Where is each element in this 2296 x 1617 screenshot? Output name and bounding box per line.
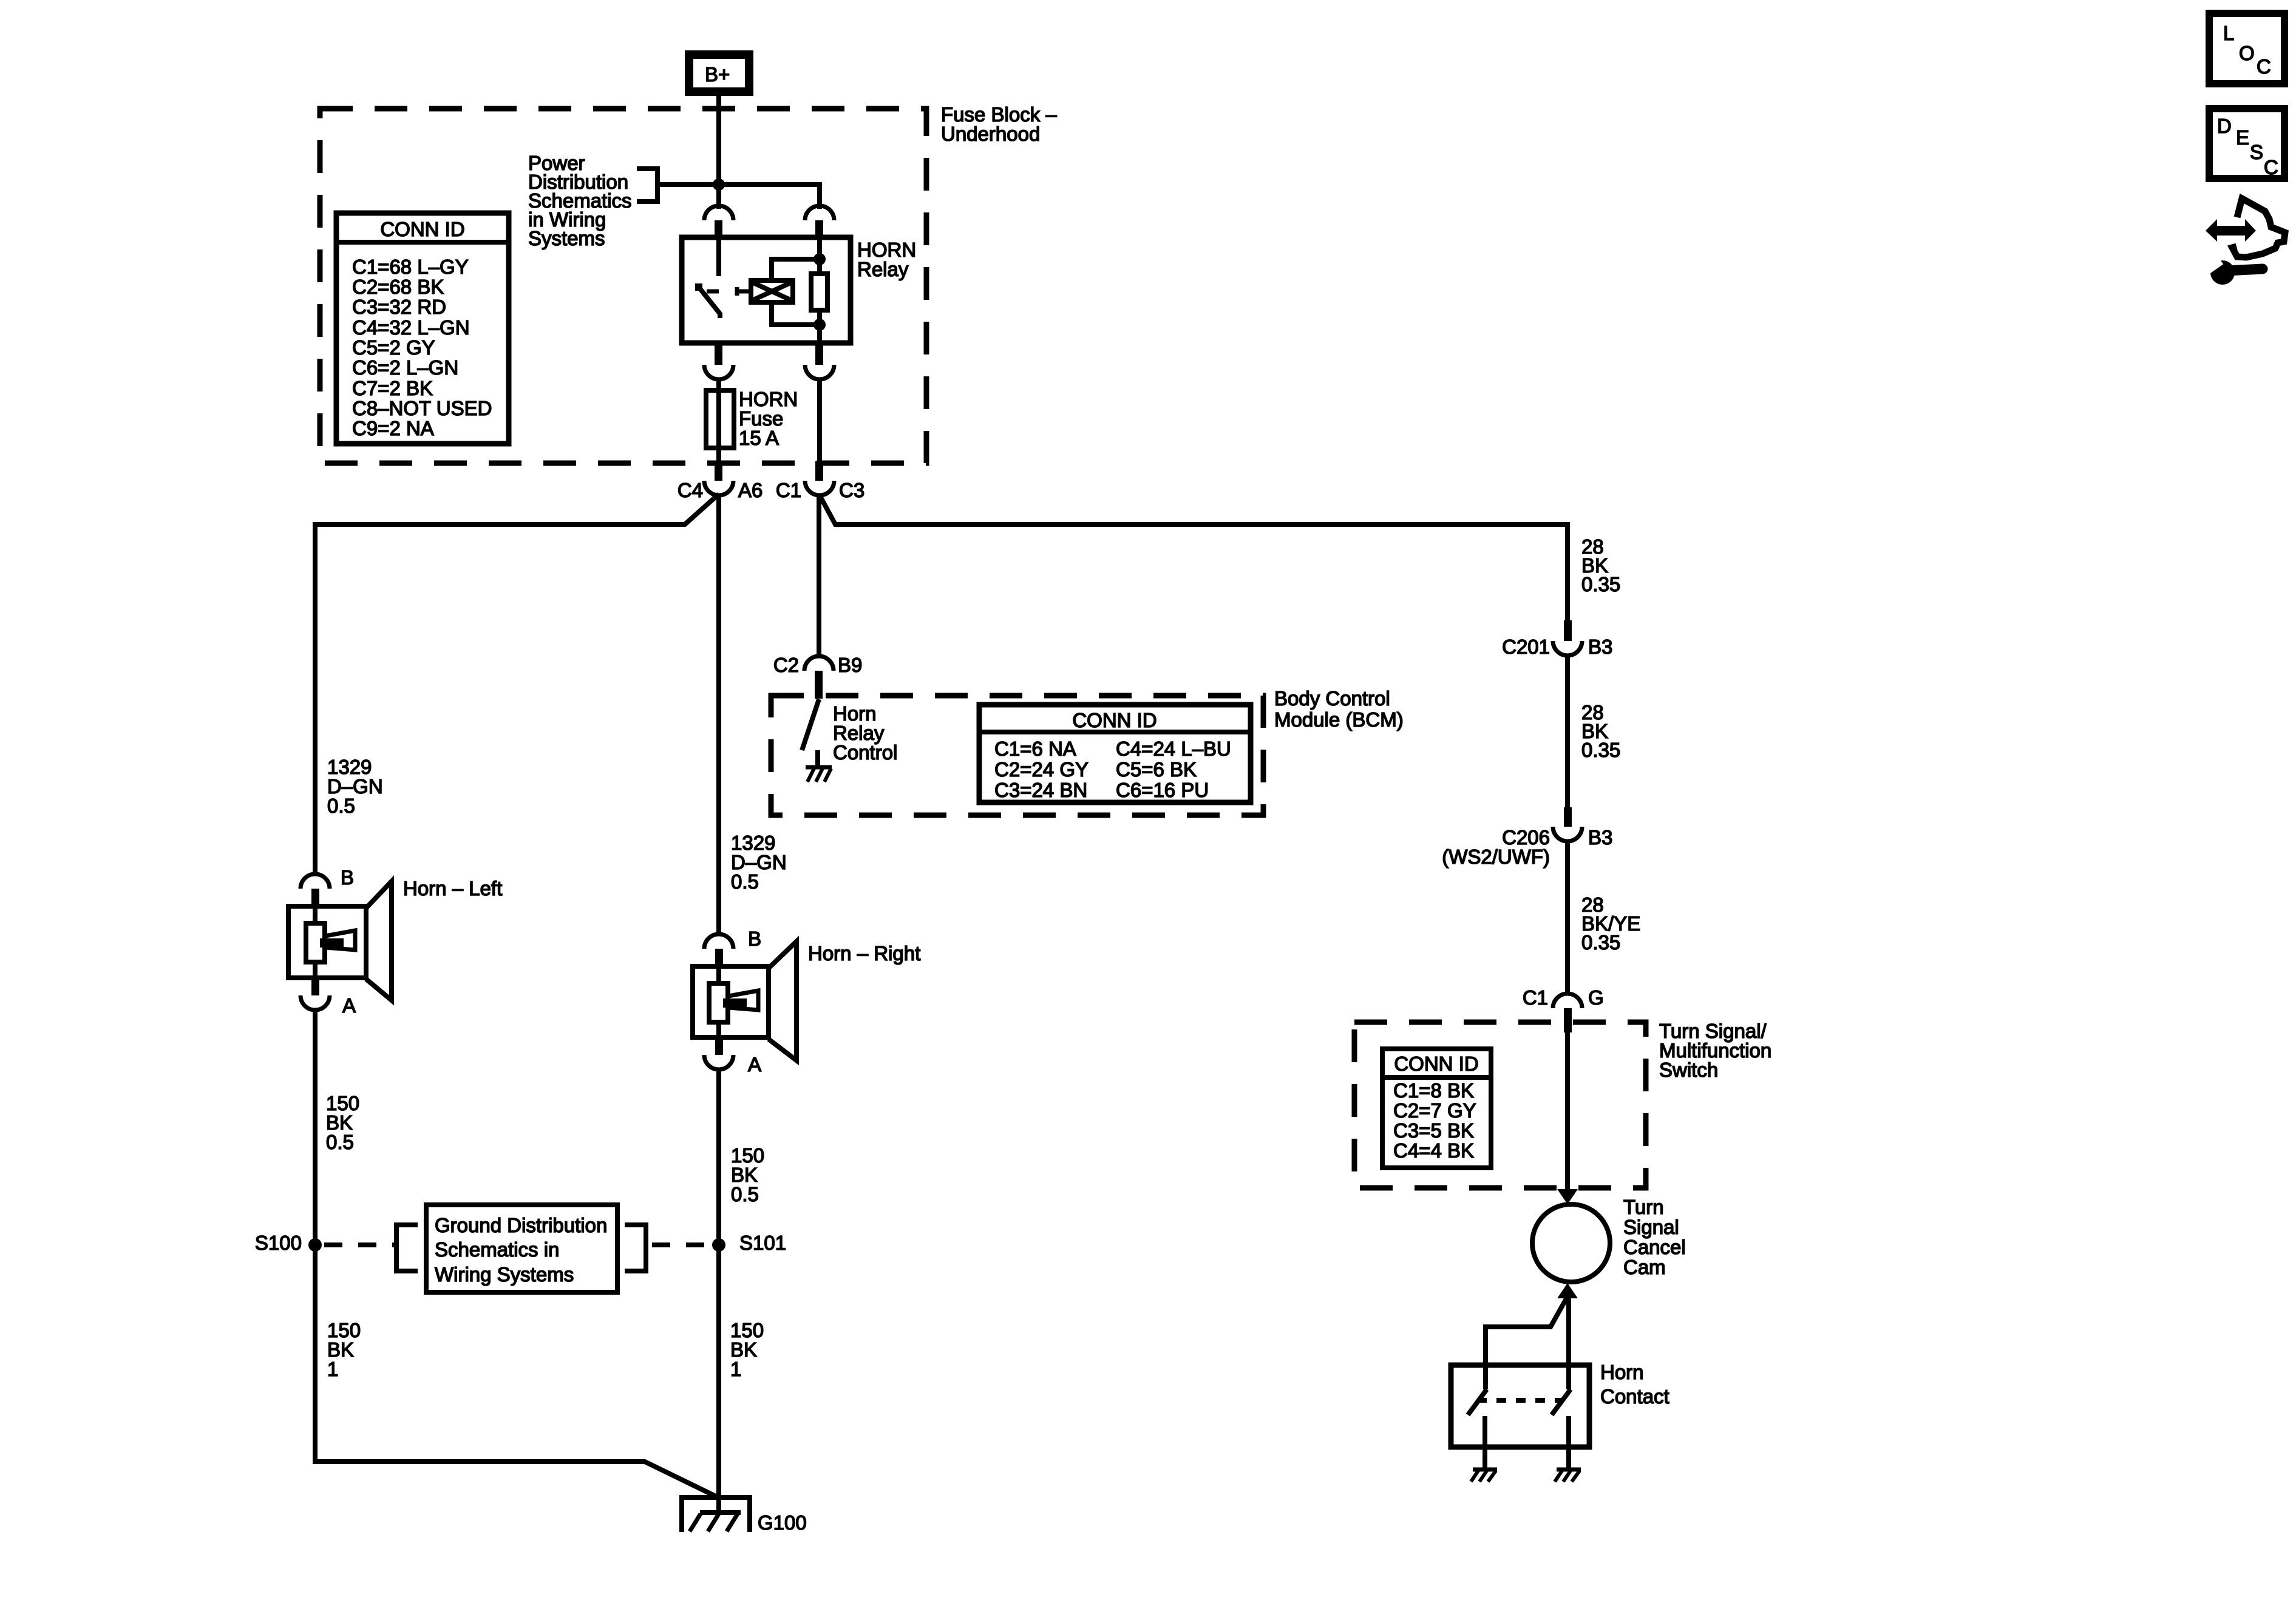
svg-text:C: C <box>2257 55 2271 78</box>
svg-text:B3: B3 <box>1588 636 1612 658</box>
svg-text:C8–NOT USED: C8–NOT USED <box>352 397 492 419</box>
svg-text:Cam: Cam <box>1623 1256 1666 1278</box>
svg-text:CONN ID: CONN ID <box>1394 1053 1478 1075</box>
svg-text:A: A <box>342 994 356 1017</box>
svg-text:B: B <box>748 927 761 950</box>
svg-text:G: G <box>1588 986 1604 1009</box>
svg-text:0.5: 0.5 <box>731 1183 759 1205</box>
svg-text:C3=32 RD: C3=32 RD <box>352 296 446 318</box>
svg-text:15 A: 15 A <box>739 427 779 449</box>
svg-text:0.35: 0.35 <box>1581 739 1620 761</box>
svg-text:Signal: Signal <box>1623 1216 1679 1238</box>
svg-text:C5=6 BK: C5=6 BK <box>1116 758 1197 781</box>
svg-text:0.5: 0.5 <box>731 870 759 893</box>
svg-text:0.35: 0.35 <box>1581 931 1620 954</box>
svg-text:A: A <box>748 1053 761 1076</box>
svg-text:Control: Control <box>833 741 897 764</box>
svg-text:CONN ID: CONN ID <box>1072 709 1156 731</box>
svg-text:O: O <box>2239 42 2255 64</box>
svg-text:B: B <box>341 866 354 889</box>
svg-text:C4=24 L–BU: C4=24 L–BU <box>1116 737 1231 760</box>
svg-text:C1: C1 <box>1523 986 1548 1009</box>
svg-text:C2=7 GY: C2=7 GY <box>1393 1099 1476 1122</box>
svg-text:Schematics in: Schematics in <box>435 1238 559 1261</box>
svg-text:G100: G100 <box>758 1511 807 1534</box>
svg-text:C: C <box>2264 156 2278 178</box>
svg-text:0.5: 0.5 <box>326 1131 354 1153</box>
svg-text:Turn: Turn <box>1623 1196 1664 1218</box>
svg-text:B+: B+ <box>705 63 730 86</box>
svg-text:1: 1 <box>730 1358 741 1380</box>
svg-text:B9: B9 <box>838 654 862 676</box>
svg-text:Relay: Relay <box>857 258 909 280</box>
svg-text:0.5: 0.5 <box>327 795 355 817</box>
svg-text:C6=16 PU: C6=16 PU <box>1116 779 1209 801</box>
svg-text:C7=2 BK: C7=2 BK <box>352 377 433 399</box>
svg-text:C3=5 BK: C3=5 BK <box>1393 1119 1474 1142</box>
svg-text:C5=2 GY: C5=2 GY <box>352 336 435 359</box>
svg-text:C1=68 L–GY: C1=68 L–GY <box>352 256 469 278</box>
svg-text:S100: S100 <box>255 1232 302 1254</box>
svg-text:C1=6 NA: C1=6 NA <box>994 737 1076 760</box>
svg-text:C9=2 NA: C9=2 NA <box>352 417 434 439</box>
svg-text:C2=24 GY: C2=24 GY <box>994 758 1089 781</box>
svg-text:Ground Distribution: Ground Distribution <box>435 1214 607 1236</box>
svg-text:E: E <box>2236 126 2249 149</box>
svg-text:1: 1 <box>327 1358 338 1380</box>
svg-text:Cancel: Cancel <box>1623 1236 1686 1258</box>
svg-text:Horn – Right: Horn – Right <box>808 942 920 964</box>
svg-text:C4=32 L–GN: C4=32 L–GN <box>352 316 470 339</box>
svg-text:C1: C1 <box>776 479 801 501</box>
svg-text:C3=24 BN: C3=24 BN <box>994 779 1087 801</box>
svg-text:Contact: Contact <box>1600 1385 1669 1408</box>
svg-text:C3: C3 <box>839 479 864 501</box>
svg-text:C4: C4 <box>678 479 703 501</box>
svg-text:Wiring Systems: Wiring Systems <box>435 1263 574 1286</box>
svg-text:L: L <box>2223 22 2234 44</box>
svg-text:C6=2 L–GN: C6=2 L–GN <box>352 356 458 379</box>
svg-text:A6: A6 <box>738 479 763 501</box>
svg-text:S: S <box>2250 141 2263 163</box>
svg-text:Module (BCM): Module (BCM) <box>1274 708 1404 731</box>
svg-text:Horn – Left: Horn – Left <box>403 877 502 900</box>
svg-text:S101: S101 <box>739 1232 786 1254</box>
svg-text:B3: B3 <box>1588 826 1612 849</box>
svg-text:Switch: Switch <box>1659 1059 1718 1081</box>
svg-text:C2=68 BK: C2=68 BK <box>352 276 444 298</box>
svg-text:C201: C201 <box>1502 636 1550 658</box>
svg-text:Systems: Systems <box>528 227 605 249</box>
svg-text:D: D <box>2217 115 2232 137</box>
svg-text:C1=8 BK: C1=8 BK <box>1393 1079 1474 1102</box>
svg-text:0.35: 0.35 <box>1581 573 1620 595</box>
svg-text:Underhood: Underhood <box>941 123 1040 145</box>
svg-text:Horn: Horn <box>1600 1361 1644 1383</box>
svg-text:C4=4 BK: C4=4 BK <box>1393 1139 1474 1162</box>
svg-text:Body Control: Body Control <box>1274 687 1390 710</box>
svg-text:(WS2/UWF): (WS2/UWF) <box>1442 846 1550 868</box>
svg-text:C2: C2 <box>773 654 799 676</box>
svg-text:CONN ID: CONN ID <box>380 218 464 240</box>
